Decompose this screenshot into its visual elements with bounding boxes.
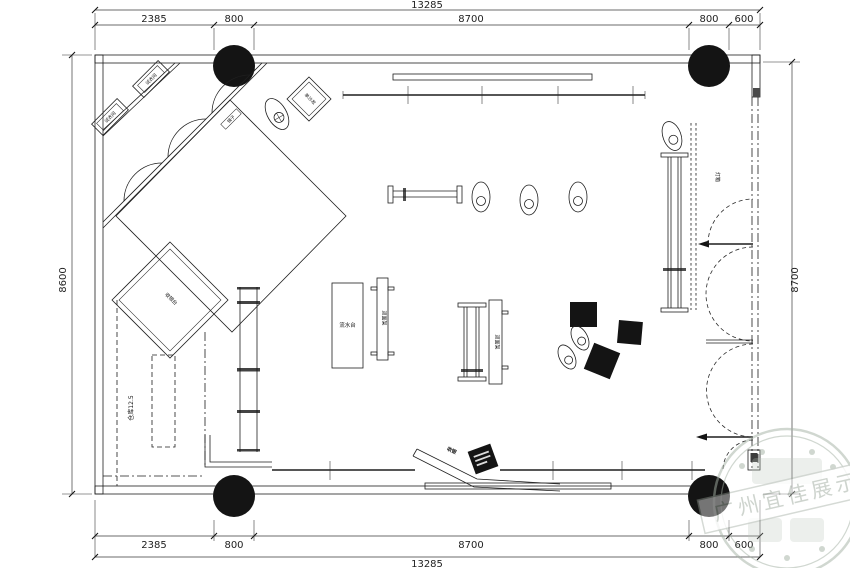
dim-bot-4: 800 xyxy=(699,540,718,551)
column xyxy=(213,45,255,87)
display-table: 流水台 xyxy=(332,283,363,368)
columns xyxy=(213,45,730,517)
logo-block xyxy=(468,444,499,475)
desk-label: 收银 xyxy=(446,445,459,456)
dim-bot-1: 2385 xyxy=(141,540,166,551)
mannequin-icon xyxy=(472,182,490,212)
room-diamond-large xyxy=(116,100,346,332)
plinth xyxy=(584,343,620,379)
right-rack: 灯箱 xyxy=(658,119,721,312)
storage-rack-dashed xyxy=(152,355,175,447)
door-frame-top xyxy=(753,88,760,97)
mullion xyxy=(698,241,753,248)
dim-left: 8600 xyxy=(58,267,69,292)
floor-plan-drawing: 13285 2385 800 8700 800 600 2385 800 870… xyxy=(0,0,850,568)
dim-top-5: 600 xyxy=(734,14,753,25)
dim-bot-2: 800 xyxy=(224,540,243,551)
mirror: 镜子 xyxy=(221,109,242,130)
display-table-label: 流水台 xyxy=(339,321,355,329)
dim-top-4: 800 xyxy=(699,14,718,25)
fitting-room-suite: 试衣间 试衣间 单沙发 镜子 收银台 xyxy=(92,61,346,358)
column xyxy=(688,45,730,87)
mullion xyxy=(696,434,753,441)
cash-desk: 收银 xyxy=(413,444,560,491)
window-swing-arc xyxy=(707,344,753,437)
top-display xyxy=(343,74,645,104)
mannequin-icon xyxy=(567,323,592,353)
dimension-bottom: 2385 800 8700 800 600 13285 xyxy=(92,500,763,568)
rack-label: 双面架 xyxy=(494,334,500,349)
display-board-top xyxy=(393,74,592,80)
dim-overall-top: 13285 xyxy=(411,0,443,11)
lightbox-label: 灯箱 xyxy=(714,172,721,182)
floor-plan: 13285 2385 800 8700 800 600 2385 800 870… xyxy=(0,0,850,568)
double-rail-rack xyxy=(458,303,486,381)
dim-overall-bottom: 13285 xyxy=(411,559,443,568)
mannequin-icon xyxy=(554,342,579,372)
dim-top-2: 800 xyxy=(224,14,243,25)
watermark-stamp: 广州宜佳展示 xyxy=(697,429,850,568)
plank-rack-2: 双面架 xyxy=(489,300,508,384)
storefront-glazing xyxy=(696,97,760,470)
tall-wall-rack xyxy=(237,287,260,452)
dimension-left: 8600 xyxy=(58,52,92,497)
horizontal-rack xyxy=(388,186,462,203)
mannequin-icon xyxy=(569,182,587,212)
mannequin-icon xyxy=(658,119,685,153)
column xyxy=(213,475,255,517)
sofa-diamond: 单沙发 xyxy=(287,77,331,121)
plank-rack-1: 双面架 xyxy=(371,278,394,360)
cashier-room-label: 收银台 xyxy=(163,291,179,307)
cashier-room-diamond: 收银台 xyxy=(112,242,228,358)
rack-label: 双面架 xyxy=(381,310,387,325)
dimension-top: 13285 2385 800 8700 800 600 xyxy=(92,0,763,50)
dim-top-3: 8700 xyxy=(458,14,483,25)
fitting-bench-2: 试衣间 xyxy=(133,61,170,98)
wall-top xyxy=(95,55,760,63)
storage-label: 仓库12.5 xyxy=(127,395,135,421)
window-swing-arc xyxy=(723,440,753,470)
dim-right: 8700 xyxy=(790,267,801,292)
plinth xyxy=(570,302,597,327)
window-swing-arc xyxy=(706,247,753,341)
mirror-label: 镜子 xyxy=(225,113,237,125)
window-swing-arc xyxy=(708,199,753,244)
mannequin-icon xyxy=(520,185,538,215)
dim-bot-3: 8700 xyxy=(458,540,483,551)
plinth xyxy=(617,320,643,345)
display-plinths xyxy=(554,302,643,379)
dim-top-1: 2385 xyxy=(141,14,166,25)
sofa-label: 单沙发 xyxy=(303,92,318,107)
wall-bottom xyxy=(95,486,713,494)
